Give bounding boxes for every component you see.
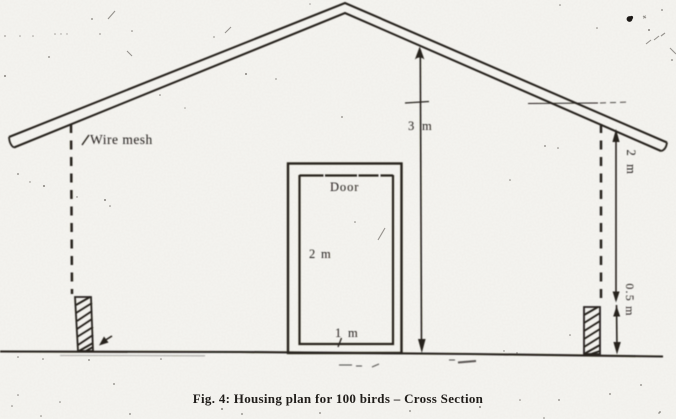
svg-text:m: m xyxy=(422,119,432,133)
svg-text:Wire mesh: Wire mesh xyxy=(90,132,153,147)
svg-text:1: 1 xyxy=(335,326,341,340)
svg-text:3: 3 xyxy=(408,119,414,133)
svg-text:m: m xyxy=(321,247,331,261)
svg-text:Fig. 4: Housing plan for 100 b: Fig. 4: Housing plan for 100 birds – Cro… xyxy=(193,391,484,406)
svg-text:0.5 m: 0.5 m xyxy=(623,283,637,316)
svg-text:2: 2 xyxy=(309,247,315,261)
svg-text:Door: Door xyxy=(330,180,359,194)
svg-text:2 m: 2 m xyxy=(624,150,638,177)
svg-text:m: m xyxy=(348,326,358,340)
